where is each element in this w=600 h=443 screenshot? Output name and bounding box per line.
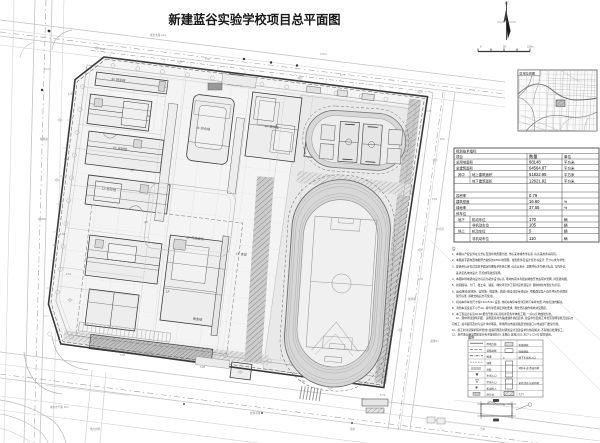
- svg-text:单位: 单位: [564, 154, 572, 159]
- svg-text:建筑密度: 建筑密度: [456, 199, 470, 204]
- svg-text:用地红线: 用地红线: [487, 342, 498, 346]
- svg-text:辆: 辆: [564, 229, 568, 234]
- svg-text:新建蓝谷实验学校项目总平面图: 新建蓝谷实验学校项目总平面图: [168, 12, 340, 27]
- svg-text:16.60: 16.60: [529, 199, 540, 204]
- svg-text:5.95: 5.95: [120, 353, 126, 357]
- svg-text:0.79: 0.79: [529, 193, 538, 198]
- svg-text:区域位置图: 区域位置图: [520, 71, 535, 76]
- svg-text:地上: 地上: [458, 229, 465, 234]
- svg-text:2、本图总平面布置依据甲方提供的1/500 地形图、规划条件: 2、本图总平面布置依据甲方提供的1/500 地形图、规划条件及设计任务书设计, …: [452, 258, 567, 262]
- svg-text:地下车库出入口: 地下车库出入口: [519, 356, 537, 360]
- svg-text:雨水: 雨水: [350, 427, 356, 431]
- svg-text:绿篱: 绿篱: [487, 361, 493, 365]
- svg-text:5250: 5250: [493, 400, 499, 403]
- svg-text:地下: 地下: [458, 217, 465, 222]
- svg-text:100m: 100m: [527, 45, 534, 49]
- svg-text:6.78: 6.78: [426, 109, 432, 113]
- svg-text:170: 170: [529, 217, 537, 222]
- svg-text:3、建筑坐标定位详见总平面定位图及单体施工图, 标高以米计,: 3、建筑坐标定位详见总平面定位图及单体施工图, 标高以米计, 总图中标注为绝对标…: [452, 265, 566, 269]
- svg-text:6.70: 6.70: [340, 73, 346, 77]
- svg-text:5.76: 5.76: [380, 393, 386, 397]
- svg-text:6.54: 6.54: [432, 197, 438, 201]
- svg-text:平方米: 平方米: [564, 166, 575, 171]
- svg-text:项目: 项目: [456, 155, 463, 159]
- svg-text:台阶: 台阶: [487, 367, 493, 371]
- svg-text:1、本图以产权证界址点坐标及现状地形图为准, 坐标采用城市坐: 1、本图以产权证界址点坐标及现状地形图为准, 坐标采用城市坐标系, 标高采用黄海…: [452, 252, 559, 256]
- svg-text:%: %: [564, 206, 567, 210]
- svg-text:68148: 68148: [529, 160, 541, 165]
- svg-text:规划路: 规划路: [408, 297, 416, 301]
- svg-text:5.98: 5.98: [60, 232, 66, 236]
- svg-text:现行标准, 验收合格后方可使用。: 现行标准, 验收合格后方可使用。: [456, 294, 495, 298]
- svg-text:规划路: 规划路: [40, 137, 48, 141]
- svg-text:5.88: 5.88: [200, 365, 206, 369]
- svg-text:51822.95: 51822.95: [529, 172, 547, 177]
- svg-text:6、运动场地(足球场、篮球场、排球场、跑道) 做法详见专项设: 6、运动场地(足球场、篮球场、排球场、跑道) 做法详见专项设计, 塑胶面层及人造…: [452, 290, 568, 294]
- svg-text:6.42: 6.42: [100, 47, 106, 51]
- svg-text:规划技术指标: 规划技术指标: [456, 148, 477, 153]
- svg-text:注:: 注:: [452, 246, 456, 251]
- svg-text:DN300: DN300: [38, 217, 47, 221]
- svg-text:消防车道 登高场地: 消防车道 登高场地: [519, 366, 540, 370]
- svg-text:8、消防车道宽度不小于4m, 转弯半径满足消防要求, 消防登: 8、消防车道宽度不小于4m, 转弯半径满足消防要求, 消防登高操作场地详见图示。: [452, 306, 549, 310]
- svg-text:辆: 辆: [564, 236, 568, 241]
- svg-text:2F: 2F: [130, 168, 134, 172]
- svg-text:城市支路 24m: 城市支路 24m: [150, 33, 166, 37]
- svg-text:地下建筑面积: 地下建筑面积: [472, 179, 493, 184]
- svg-text:退线5m: 退线5m: [430, 339, 439, 343]
- svg-text:绿地率: 绿地率: [456, 205, 467, 210]
- svg-text:X=5.2: X=5.2: [320, 52, 327, 56]
- svg-text:地上建筑面积: 地上建筑面积: [472, 172, 493, 177]
- svg-text:图例: 图例: [468, 335, 474, 340]
- svg-text:辆: 辆: [564, 223, 568, 228]
- svg-text:1F: 1F: [166, 289, 170, 293]
- svg-text:64564.87: 64564.87: [529, 166, 547, 171]
- svg-text:6.35: 6.35: [68, 92, 74, 96]
- svg-text:停车位: 停车位: [456, 211, 467, 216]
- svg-text:其中: 其中: [458, 172, 465, 177]
- svg-text:11、施工时注意保护现状管线! 如遇问题及时通知设计及建设单: 11、施工时注意保护现状管线! 如遇问题及时通知设计及建设单位协商解决, 不得擅…: [452, 328, 565, 332]
- svg-text:105: 105: [529, 223, 537, 228]
- svg-text:大门: 大门: [519, 392, 525, 396]
- svg-text:机动车位: 机动车位: [472, 217, 486, 222]
- svg-text:37.55: 37.55: [529, 205, 540, 210]
- svg-text:%: %: [564, 200, 567, 204]
- svg-text:道路边线: 道路边线: [487, 348, 498, 352]
- svg-text:容积率: 容积率: [456, 193, 467, 198]
- svg-text:辆: 辆: [564, 217, 568, 222]
- svg-text:次出入口: 次出入口: [487, 380, 498, 384]
- svg-text:7、机动车停车位尺寸按2.4m×5.3m 设置, 非机动车停: 7、机动车停车位尺寸按2.4m×5.3m 设置, 非机动车停车位详见地下车库布置…: [452, 300, 565, 304]
- svg-text:6.12: 6.12: [64, 157, 70, 161]
- svg-text:室外活动 运动场地: 室外活动 运动场地: [519, 381, 540, 385]
- svg-text:污水: 污水: [480, 427, 486, 431]
- svg-text:非机动车位: 非机动车位: [472, 236, 490, 241]
- svg-text:5、校园围墙、大门、挡土墙、铺装、绿化等室外工程详见景观设计: 5、校园围墙、大门、挡土墙、铺装、绿化等室外工程详见景观设计, 图中绿化布置仅为…: [452, 283, 563, 287]
- svg-text:6.31: 6.31: [418, 277, 424, 281]
- svg-text:非机动车位: 非机动车位: [472, 223, 490, 228]
- svg-text:9、本工程设计标高±0.00 相当于绝对标高值详见各单体施工: 9、本工程设计标高±0.00 相当于绝对标高值详见各单体施工图, 一切以实地放线…: [452, 312, 554, 316]
- svg-text:机动车位: 机动车位: [472, 229, 486, 234]
- svg-text:人行道: 人行道: [436, 227, 444, 231]
- svg-text:规划道路: 规划道路: [250, 411, 261, 415]
- svg-text:城市次干路 32m: 城市次干路 32m: [50, 405, 69, 409]
- svg-text:6.01: 6.01: [66, 272, 72, 276]
- svg-text:保留建筑: 保留建筑: [519, 349, 530, 353]
- svg-text:总用地面积: 总用地面积: [456, 160, 474, 165]
- svg-text:机动出入: 机动出入: [487, 386, 498, 390]
- svg-text:4、本图中场地竖向设计标高为初步设计标高, 场地内雨水有组织: 4、本图中场地竖向设计标高为初步设计标高, 场地内雨水有组织排放至市政雨水管网,…: [452, 277, 569, 281]
- svg-text:平方米: 平方米: [564, 172, 575, 177]
- svg-text:10、图中所注建筑间距、退界距离均为轴线或外墙皮距离, 建设: 10、图中所注建筑间距、退界距离均为轴线或外墙皮距离, 建设单位及施工单位须现场…: [456, 316, 574, 320]
- svg-text:电力排管: 电力排管: [90, 427, 101, 431]
- svg-text:总建筑面积: 总建筑面积: [456, 166, 474, 171]
- svg-text:围墙: 围墙: [487, 355, 493, 359]
- svg-text:可施工, 如有疑问及时与设计单位联系。场地周边市政道路及管线: 可施工, 如有疑问及时与设计单位联系。场地周边市政道路及管线接口以市政部门批复为…: [452, 322, 561, 326]
- svg-text:2550: 2550: [493, 419, 499, 422]
- svg-text:平方米: 平方米: [564, 179, 575, 184]
- svg-text:110: 110: [529, 236, 536, 241]
- svg-text:差详见各单体设计, 开挖前须复核现场。: 差详见各单体设计, 开挖前须复核现场。: [456, 271, 503, 275]
- svg-text:5.80: 5.80: [300, 379, 306, 383]
- svg-text:6.55: 6.55: [205, 57, 211, 61]
- svg-text:主出入口: 主出入口: [487, 374, 498, 378]
- svg-text:停车位: 停车位: [487, 393, 495, 397]
- svg-text:平方米: 平方米: [564, 160, 575, 165]
- svg-text:12621.92: 12621.92: [529, 179, 547, 184]
- svg-text:15m: 15m: [440, 137, 445, 141]
- svg-text:X=3.5: X=3.5: [44, 67, 51, 71]
- svg-text:新建建筑: 新建建筑: [519, 343, 530, 347]
